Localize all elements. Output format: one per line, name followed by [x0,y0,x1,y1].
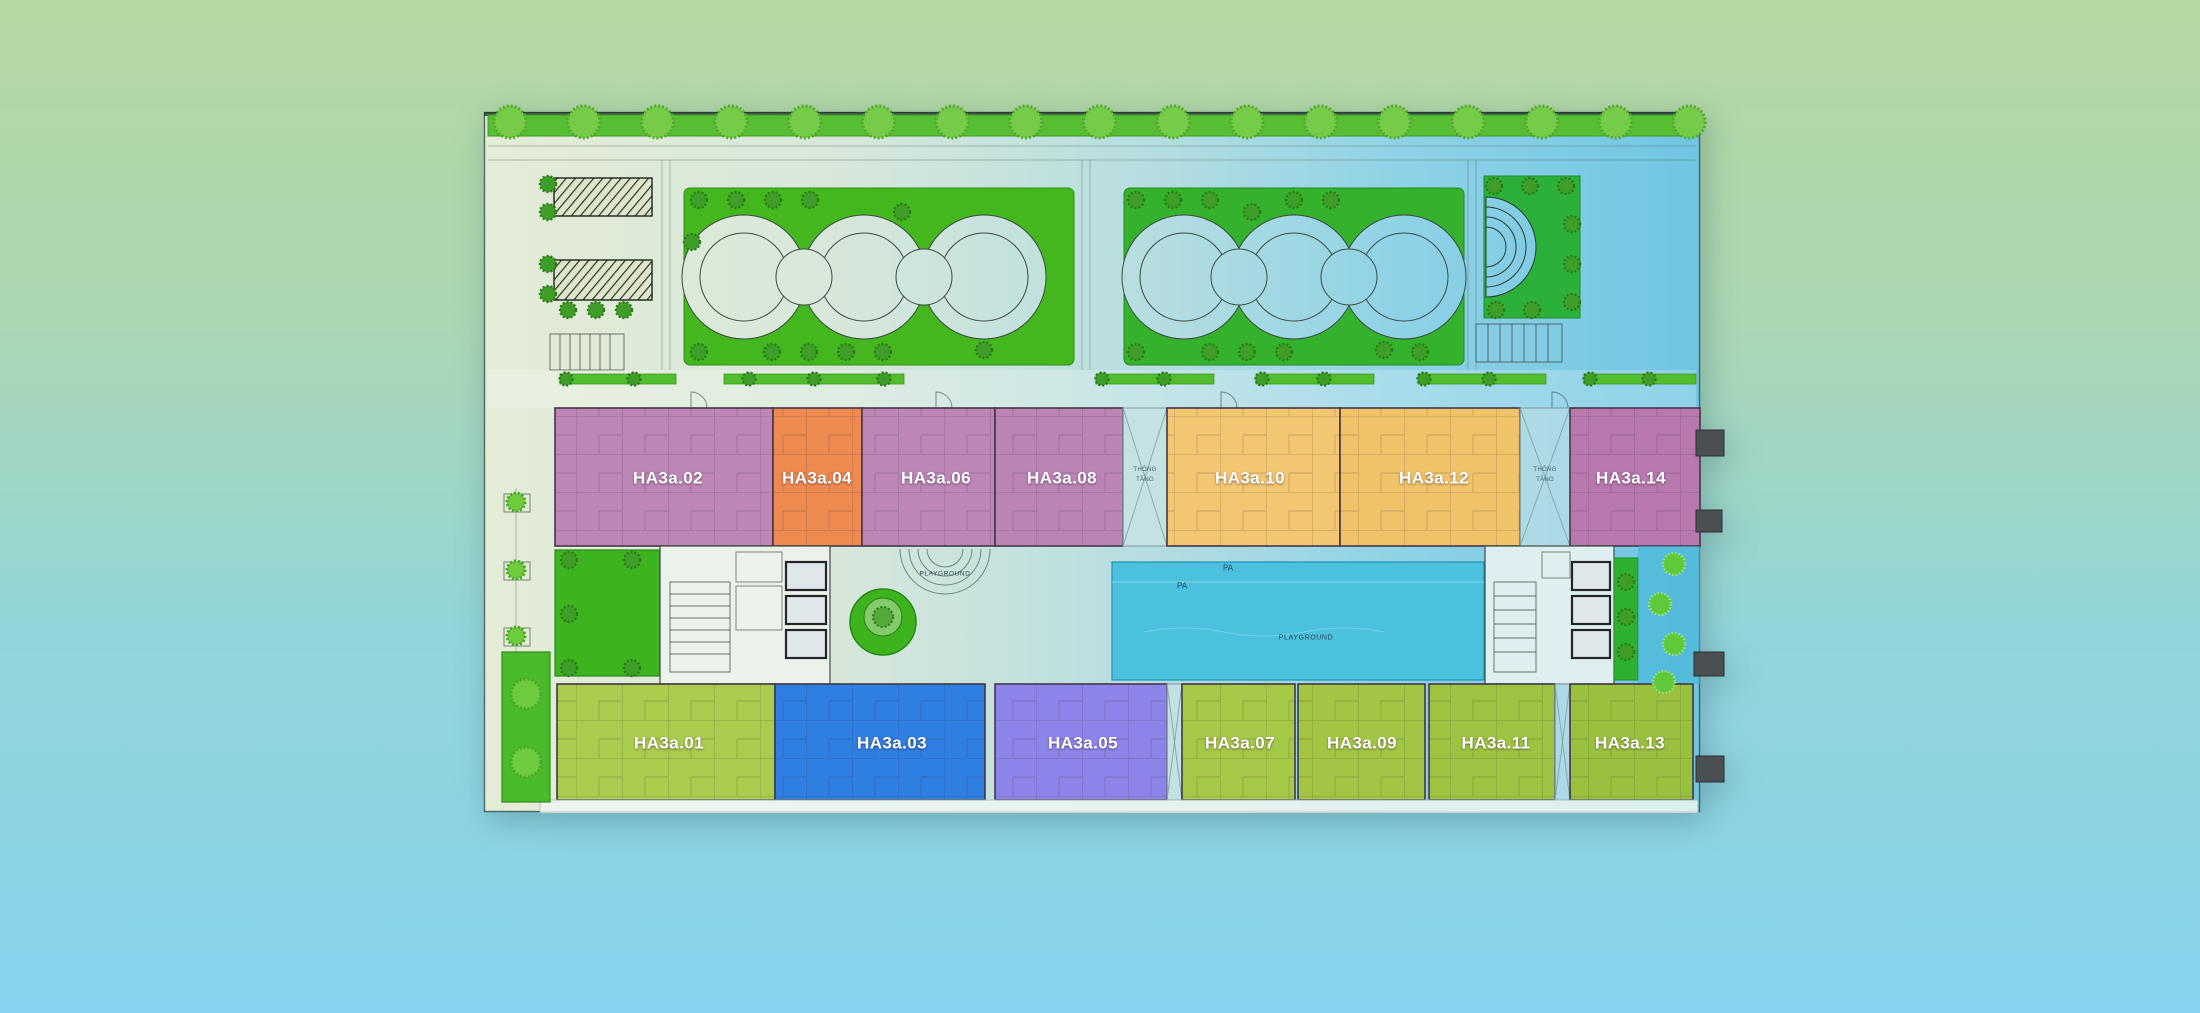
tree-icon [1483,373,1496,386]
tree-icon [540,176,556,192]
tree-icon [1618,644,1634,660]
unit-ha3a-09[interactable]: HA3a.09 [1298,684,1425,800]
tree-icon [628,373,641,386]
garden-amphitheater [1484,176,1580,318]
tree-icon [1558,178,1574,194]
unit-ha3a-02[interactable]: HA3a.02 [555,408,773,546]
tree-icon [743,373,756,386]
tree-icon [540,256,556,272]
unit-ha3a-10[interactable]: HA3a.10 [1167,408,1340,546]
tree-icon [1618,574,1634,590]
pool: PA PA PLAYGROUND [1112,562,1484,680]
tree-icon [1231,106,1263,138]
tree-icon [1318,373,1331,386]
amenity-strip: PLAYGROUND PA PA PLAYGROUND [555,546,1700,684]
planter-bars [560,374,1696,384]
tree-icon [1128,344,1144,360]
tree-icon [1673,106,1705,138]
unit-ha3a-03[interactable]: HA3a.03 [775,684,985,800]
tree-icon [568,106,600,138]
tree-icon [507,493,525,511]
tree-icon [1158,373,1171,386]
tree-icon [764,344,780,360]
tree-icon [1084,106,1116,138]
tree-icon [838,344,854,360]
unit-ha3a-13[interactable]: HA3a.13 [1570,684,1693,800]
tree-icon [691,192,707,208]
tree-icon [1128,192,1144,208]
tree-icon [561,660,577,676]
svg-text:THÔNG: THÔNG [1533,466,1556,473]
core-west [660,546,830,684]
tree-icon [494,106,526,138]
tree-icon [1643,373,1656,386]
tree-icon [878,373,891,386]
tree-icon [511,679,541,709]
palm-tree-icon [1649,593,1671,615]
unit-ha3a-04[interactable]: HA3a.04 [773,408,862,546]
tree-icon [1488,302,1504,318]
pergola-trellis [554,260,652,300]
tree-icon [691,344,707,360]
svg-text:TẦNG: TẦNG [1136,476,1154,483]
tree-icon [1096,373,1109,386]
tree-icon [561,552,577,568]
svg-text:PLAYGROUND: PLAYGROUND [919,571,970,578]
pergola-trellis [554,178,652,216]
tree-icon [808,373,821,386]
tree-icon [863,106,895,138]
void-shaft-4 [1555,684,1570,800]
feature-tree-circle [850,589,916,655]
palm-tree-icon [1663,553,1685,575]
unit-ha3a-11[interactable]: HA3a.11 [1429,684,1555,800]
tree-icon [1256,373,1269,386]
tree-icon [1486,178,1502,194]
tree-icon [1524,302,1540,318]
tree-icon [1376,342,1392,358]
tree-icon [1239,344,1255,360]
tree-icon [560,302,576,318]
tree-icon [1286,192,1302,208]
tree-icon [976,342,992,358]
void-shaft-1: THÔNG TẦNG [1123,408,1167,546]
tree-icon [1452,106,1484,138]
tree-icon [1323,192,1339,208]
tree-icon [588,302,604,318]
tree-icon [616,302,632,318]
tree-icon [1564,256,1580,272]
unit-ha3a-06[interactable]: HA3a.06 [862,408,995,546]
tree-icon [1157,106,1189,138]
tree-icon [1202,192,1218,208]
unit-ha3a-05[interactable]: HA3a.05 [995,684,1167,800]
upper-corridor [488,370,1696,408]
void-shaft-3 [1167,684,1182,800]
elevator [1572,596,1610,624]
unit-ha3a-01[interactable]: HA3a.01 [557,684,775,800]
tree-icon [875,344,891,360]
tree-icon [1564,216,1580,232]
garden-block-east [1122,188,1466,365]
svg-text:THÔNG: THÔNG [1133,466,1156,473]
unit-ha3a-14[interactable]: HA3a.14 [1570,408,1700,546]
elevator [786,630,826,658]
tree-icon [1600,106,1632,138]
page-background: { "background": { "top_color": "#b6d7a1"… [0,0,2200,1013]
tree-icon [540,204,556,220]
floor-plan: HA3a.02 HA3a.04 HA3a.06 HA3a.08 THÔNG TẦ… [484,96,1700,812]
core-east [1485,546,1614,684]
tree-icon [624,660,640,676]
elevator [1572,562,1610,590]
elevator [786,562,826,590]
tree-icon [1244,204,1260,220]
tree-icon [507,561,525,579]
tree-icon [1010,106,1042,138]
tree-icon [801,344,817,360]
tree-icon [561,606,577,622]
tree-icon [511,747,541,777]
tree-icon [894,204,910,220]
elevator [786,596,826,624]
tree-icon [641,106,673,138]
tree-icon [560,373,573,386]
svg-text:PA: PA [1223,564,1234,573]
garden-block-west [682,188,1074,365]
tree-icon [1526,106,1558,138]
tree-icon [936,106,968,138]
void-shaft-2: THÔNG TẦNG [1520,408,1570,546]
tree-icon [684,234,700,250]
tree-icon [1418,373,1431,386]
tree-icon [1564,294,1580,310]
tree-icon [1165,192,1181,208]
tree-icon [1412,344,1428,360]
tree-icon [1305,106,1337,138]
unit-ha3a-12[interactable]: HA3a.12 [1340,408,1520,546]
tree-icon [540,286,556,302]
unit-ha3a-08[interactable]: HA3a.08 [995,408,1123,546]
tree-icon [715,106,747,138]
tree-icon [1584,373,1597,386]
tree-icon [1276,344,1292,360]
elevator [1572,630,1610,658]
tree-icon [1618,609,1634,625]
tree-icon [728,192,744,208]
bottom-walkway [540,800,1698,813]
tree-icon [507,627,525,645]
palm-tree-icon [1653,671,1675,693]
tree-icon [1522,178,1538,194]
svg-text:TẦNG: TẦNG [1536,476,1554,483]
tree-icon [1202,344,1218,360]
tree-icon [624,552,640,568]
svg-text:PA: PA [1177,582,1188,591]
tree-icon [789,106,821,138]
unit-ha3a-07[interactable]: HA3a.07 [1182,684,1295,800]
palm-tree-icon [1663,633,1685,655]
tree-icon [802,192,818,208]
tree-icon [765,192,781,208]
svg-text:PLAYGROUND: PLAYGROUND [1279,635,1334,642]
tree-icon [1378,106,1410,138]
